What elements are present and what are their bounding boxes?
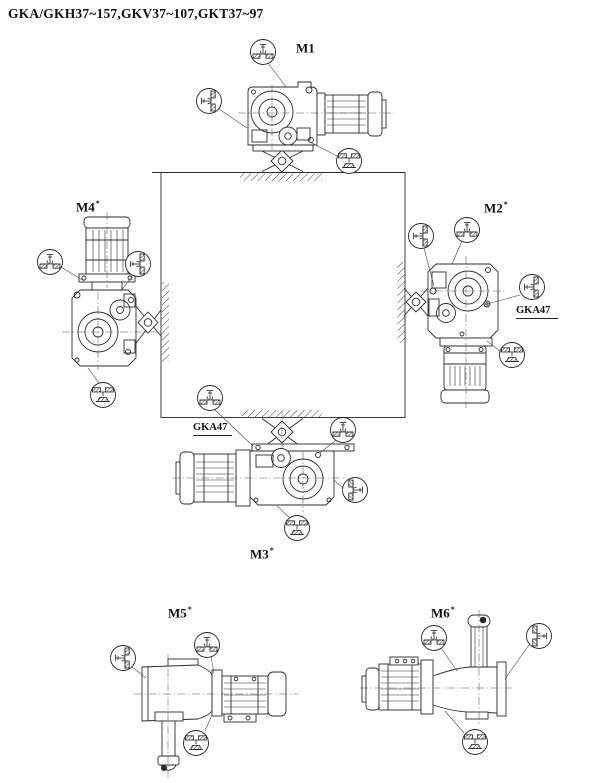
center-mounting-square [152, 173, 405, 418]
oil-level-plug-side-position-icon [126, 252, 151, 277]
label-m1-text: M1 [296, 40, 315, 55]
gearbox-housing [142, 659, 212, 721]
gearmotor-m6-drawing [360, 610, 552, 755]
oil-drain-plug-bottom-position-icon [285, 516, 310, 541]
label-m3: M3* [250, 546, 274, 562]
gearmotor-m4-drawing [38, 212, 165, 408]
gearbox-housing [433, 662, 506, 719]
oil-level-plug-side-position-icon [343, 478, 368, 503]
oil-drain-plug-bottom-position-icon [463, 730, 488, 755]
floor-hatch-m1 [240, 174, 322, 182]
diagram-canvas [0, 0, 600, 783]
gearmotor-m1-drawing [197, 40, 395, 174]
label-m1: M1 [296, 40, 316, 56]
output-flange-diamond [404, 288, 428, 316]
gearbox-housing [250, 444, 354, 505]
label-m2-footnote: * [504, 200, 508, 209]
label-m4-text: M4 [76, 199, 95, 214]
breather-plug-top-position-icon [195, 633, 220, 658]
output-shaft [158, 721, 179, 771]
oil-level-plug-side-position-icon [197, 89, 222, 114]
breather-plug-top-position-icon [422, 626, 447, 651]
oil-drain-plug-bottom-position-icon [337, 149, 362, 174]
wall-hatch-m4 [162, 282, 169, 362]
breather-plug-top-position-icon [331, 418, 356, 443]
oil-level-plug-side-position-icon [111, 646, 136, 671]
label-m5-footnote: * [188, 605, 192, 614]
oil-drain-plug-bottom-position-icon [500, 343, 525, 368]
page-title: GKA/GKH37~157,GKV37~107,GKT37~97 [8, 6, 263, 22]
label-m5-text: M5 [168, 605, 187, 620]
breather-plug-top-position-icon [251, 40, 276, 65]
gearbox-housing [72, 290, 136, 366]
breather-plug-top-position-icon [38, 250, 63, 275]
oil-level-plug-side-position-icon [527, 624, 552, 649]
label-m2: M2* [484, 200, 508, 216]
breather-plug-top-position-icon [455, 218, 480, 243]
gka47-note-m3: GKA47 [193, 422, 232, 436]
label-m3-footnote: * [270, 546, 274, 555]
label-m6-footnote: * [451, 605, 455, 614]
output-flange-trestle [262, 150, 303, 172]
gearmotor-m5-drawing [111, 633, 299, 780]
motor-body [362, 657, 433, 714]
motor-body [317, 92, 386, 136]
label-m2-text: M2 [484, 200, 503, 215]
breather-plug-top-position-icon [198, 386, 223, 411]
wall-hatch-m2 [398, 262, 405, 343]
output-flange-diamond [134, 304, 161, 346]
gear-unit-mounting-positions-diagram: GKA/GKH37~157,GKV37~107,GKT37~97 M1 M2* … [0, 0, 600, 783]
oil-level-plug-side-position-icon [409, 224, 434, 249]
oil-level-plug-side-position-icon [520, 275, 545, 300]
gearmotor-m3-drawing [172, 386, 368, 541]
label-m4-footnote: * [96, 199, 100, 208]
label-m5: M5* [168, 605, 192, 621]
gearbox-housing [428, 264, 498, 338]
gka47-note-m2: GKA47 [516, 305, 558, 319]
motor-body [212, 670, 286, 722]
label-m6: M6* [431, 605, 455, 621]
gearbox-housing [248, 82, 317, 151]
oil-drain-plug-bottom-position-icon [184, 731, 209, 756]
label-m4: M4* [76, 199, 100, 215]
label-m3-text: M3 [250, 546, 269, 561]
label-m6-text: M6 [431, 605, 450, 620]
oil-drain-plug-bottom-position-icon [91, 383, 116, 408]
